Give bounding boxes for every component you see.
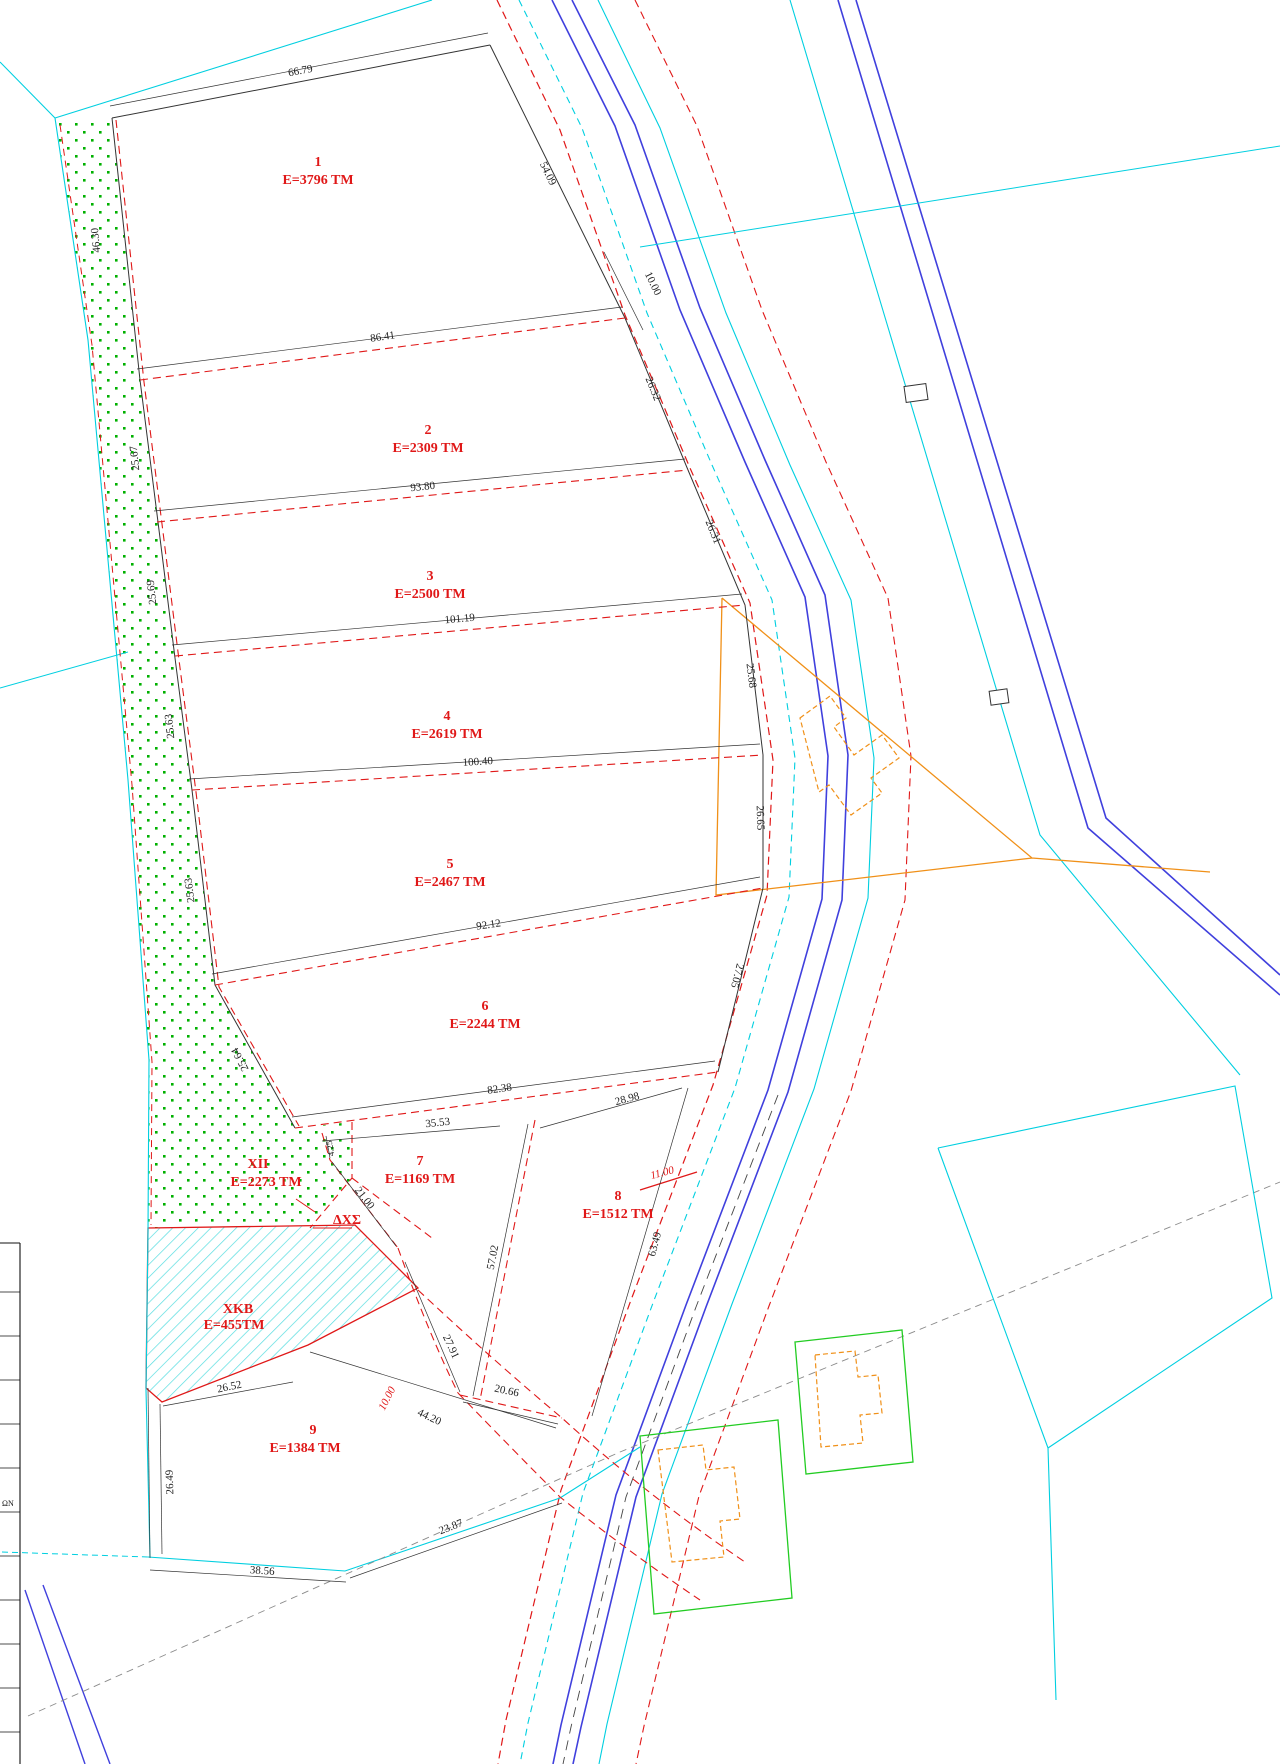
legend-corner-text: ΩΝ [2,1499,14,1508]
dim-p9-left: 26.49 [164,1469,177,1495]
parcel-3-number: 3 [427,569,434,584]
parcel-7-number: 7 [417,1154,424,1169]
parcel-6-area: E=2244 TM [449,1017,520,1032]
parcel-5-area: E=2467 TM [414,875,485,890]
dim-p5-top: 100.40 [462,755,494,769]
zone-xii-number: ΧΙΙ [247,1157,268,1172]
zone-xkb-number: ΧΚΒ [223,1302,253,1317]
road-symbol-square-1 [904,384,928,403]
parcel-8-number: 8 [615,1189,622,1204]
parcel-5-number: 5 [447,857,454,872]
zone-dxs-label: ΔΧΣ [333,1213,361,1228]
parcel-1-number: 1 [315,155,322,170]
dim-p5-right: 26.65 [754,805,767,831]
zone-xkb-area: E=455TM [204,1318,265,1333]
parcel-4-area: E=2619 TM [411,727,482,742]
parcel-8-area: E=1512 TM [582,1207,653,1222]
road-symbol-square-2 [989,689,1009,705]
parcel-2-area: E=2309 TM [392,441,463,456]
dim-p1-left: 46.30 [89,227,103,253]
parcel-7-area: E=1169 TM [385,1172,455,1187]
zone-xii-area: E=2273 TM [230,1175,301,1190]
cadastral-drawing: 66.79 46.30 54.09 10.00 86.41 25.67 26.3… [0,0,1280,1764]
dim-p9-bottom: 38.56 [249,1564,275,1578]
parcel-1-area: E=3796 TM [282,173,353,188]
parcel-3-area: E=2500 TM [394,587,465,602]
parcel-6-number: 6 [482,999,489,1014]
parcel-9-number: 9 [310,1423,317,1438]
parcel-4-number: 4 [444,709,451,724]
parcel-9-area: E=1384 TM [269,1441,340,1456]
parcel-2-number: 2 [425,423,432,438]
survey-plan-page: 66.79 46.30 54.09 10.00 86.41 25.67 26.3… [0,0,1280,1764]
